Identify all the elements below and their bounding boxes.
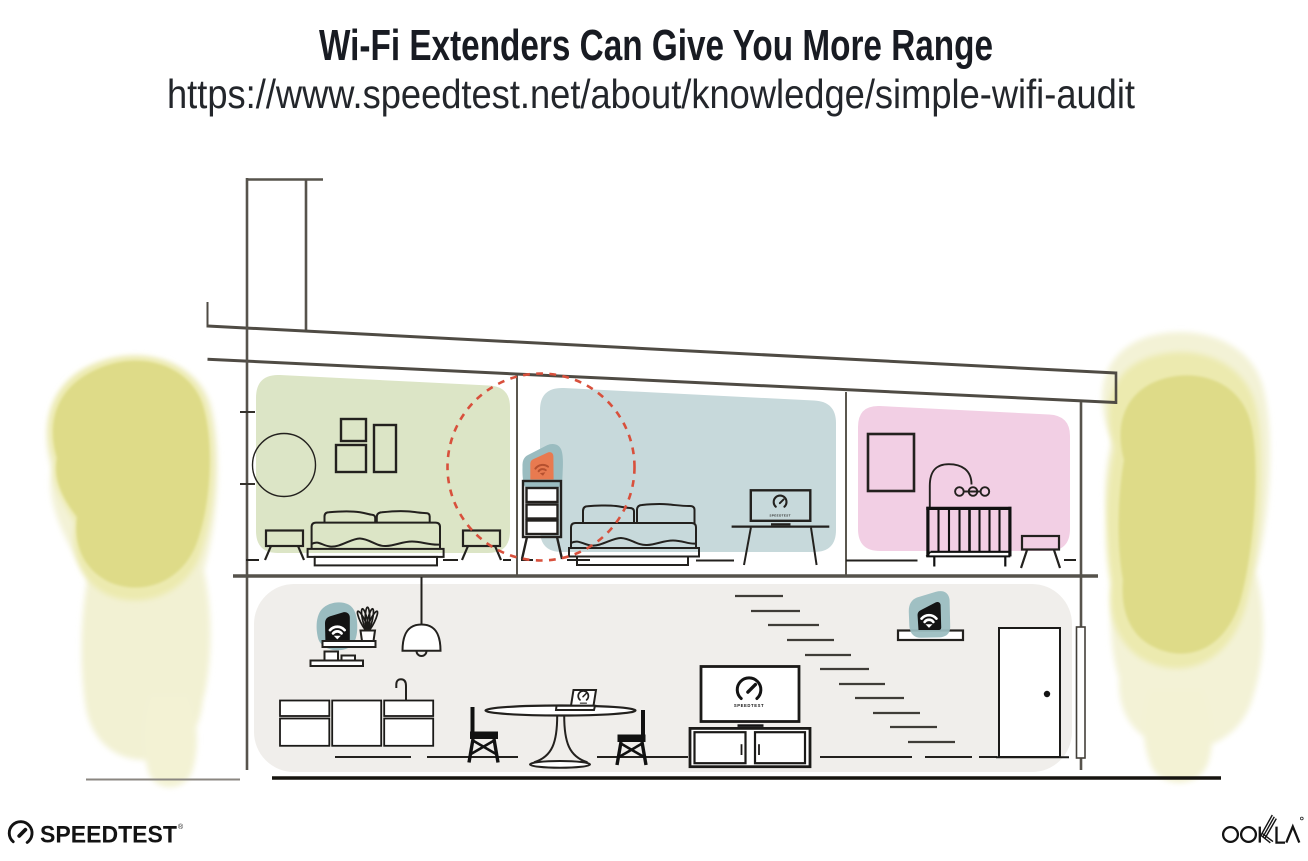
svg-text:SPEEDTEST: SPEEDTEST bbox=[40, 822, 177, 849]
svg-text:SPEEDTEST: SPEEDTEST bbox=[734, 703, 764, 708]
svg-text:https://www.speedtest.net/abou: https://www.speedtest.net/about/knowledg… bbox=[167, 71, 1136, 117]
svg-text:Wi-Fi Extenders Can Give You M: Wi-Fi Extenders Can Give You More Range bbox=[319, 21, 993, 70]
svg-text:®: ® bbox=[178, 823, 184, 831]
svg-text:SPEEDTEST: SPEEDTEST bbox=[769, 514, 790, 518]
